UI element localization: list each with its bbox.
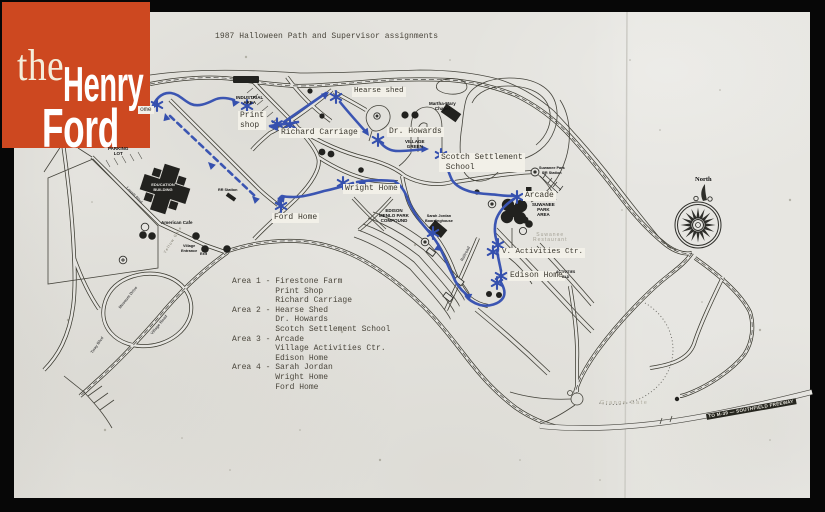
svg-text:BUILDING: BUILDING [153,187,172,192]
